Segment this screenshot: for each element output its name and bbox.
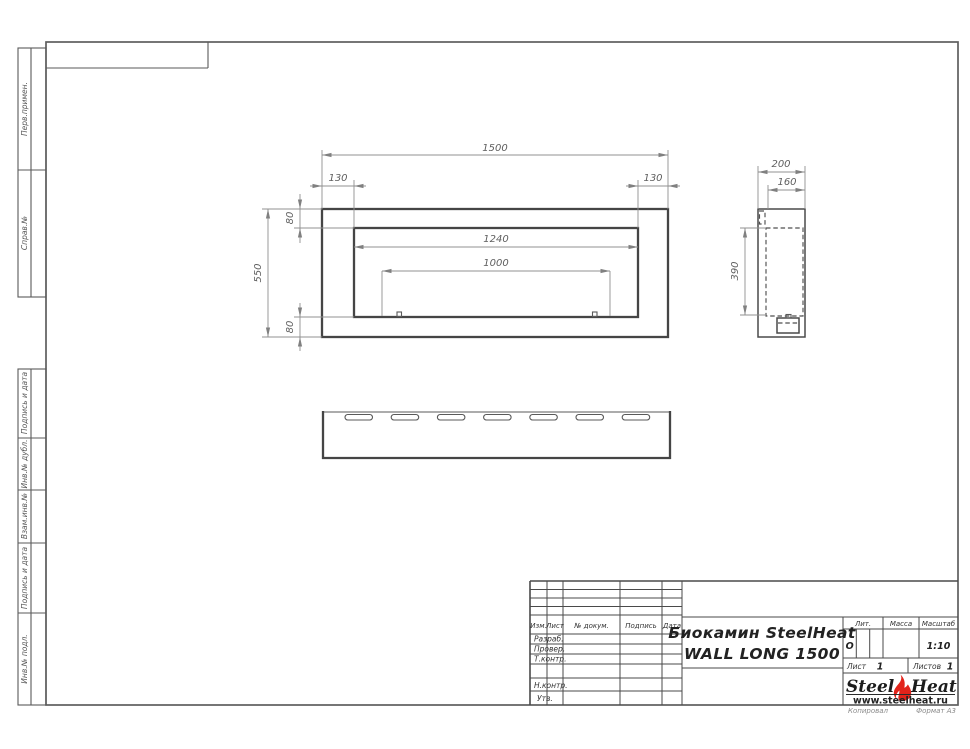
logo-heat-text: Heat: [910, 677, 957, 697]
dimensions-front: 1500 130 130 80 80 550 1240 1000: [253, 143, 680, 351]
tb-row-utv: Утв.: [537, 694, 553, 703]
tb-header-doc-no: № докум.: [573, 622, 609, 630]
dim-front-width: 1500: [482, 143, 507, 154]
tb-sheet-value: 1: [877, 662, 884, 673]
logo-steel-text: Steel: [846, 677, 895, 697]
side-bracket-hidden: [760, 211, 766, 224]
tb-row-tkontr: Т.контр.: [534, 655, 567, 664]
side-burner-box: [777, 318, 799, 333]
top-left-stamp: [46, 42, 208, 68]
dim-front-burner-width: 1000: [483, 258, 508, 269]
logo-site-url: www.steelheat.ru: [853, 696, 948, 707]
tb-header-izm: Изм.: [530, 622, 546, 630]
stamp-sprav-no: Справ.№: [20, 216, 29, 250]
dim-front-offset-right: 130: [643, 173, 662, 184]
tb-masshtab-value: 1:10: [927, 641, 951, 652]
stamp-podpis-data-top: Подпись и дата: [20, 372, 29, 435]
title-block: Изм. Лист № докум. Подпись Дата Разраб. …: [530, 581, 958, 707]
tb-header-list: Лист: [545, 622, 565, 630]
side-chamber-hidden: [766, 228, 803, 316]
tb-sheet-label: Лист: [846, 662, 867, 671]
dim-front-offset-top: 80: [285, 212, 296, 225]
dim-front-glass-width: 1240: [483, 234, 508, 245]
tb-row-razrab: Разраб.: [534, 635, 563, 644]
tb-masshtab-label: Масштаб: [922, 620, 956, 628]
footer-notes: Копировал Формат А3: [848, 707, 956, 715]
drawing-canvas: Перв.примен. Справ.№ Подпись и дата Инв.…: [0, 0, 970, 749]
burner-left-mark: [397, 312, 402, 317]
dimensions-side: 200 160 390: [730, 159, 805, 315]
footer-format: Формат А3: [916, 707, 956, 715]
sheet-frame: [46, 42, 958, 705]
tb-sheets-total-value: 1: [947, 662, 954, 673]
steelheat-logo: Steel Heat www.steelheat.ru: [846, 675, 957, 707]
bottom-view: [322, 411, 671, 459]
tb-row-nkontr: Н.контр.: [534, 681, 568, 690]
inner-frame: [46, 42, 958, 705]
tb-lit-value: О: [846, 641, 854, 652]
dim-front-height: 550: [253, 263, 264, 282]
stamp-inv-dubl: Инв.№ дубл.: [20, 440, 29, 489]
tb-sheets-total-label: Листов: [912, 662, 941, 671]
dim-side-inner-depth: 160: [777, 177, 796, 188]
doc-title-line2: WALL LONG 1500: [684, 645, 840, 663]
dim-side-height: 390: [730, 261, 741, 280]
stamp-podpis-data-bottom: Подпись и дата: [20, 547, 29, 610]
tb-massa-label: Масса: [890, 620, 912, 628]
dim-side-depth: 200: [771, 159, 790, 170]
drawing-sheet: Перв.примен. Справ.№ Подпись и дата Инв.…: [0, 0, 970, 749]
burner-right-mark: [593, 312, 598, 317]
stamp-vzam-inv: Взам.инв.№: [20, 493, 29, 539]
front-view: [322, 209, 668, 337]
dim-front-offset-left: 130: [328, 173, 347, 184]
left-stamp-column: Перв.примен. Справ.№ Подпись и дата Инв.…: [18, 48, 46, 705]
tb-lit-label: Лит.: [854, 620, 871, 628]
stamp-perv-primen: Перв.примен.: [20, 82, 29, 136]
vent-slots: [345, 415, 650, 421]
footer-kopiroval: Копировал: [848, 707, 889, 715]
tb-header-podpis: Подпись: [625, 622, 657, 630]
tb-row-prover: Провер.: [534, 645, 565, 654]
doc-title-line1: Биокамин SteelHeat: [668, 624, 856, 642]
stamp-inv-podl: Инв.№ подл.: [20, 634, 29, 683]
dim-front-offset-bottom: 80: [285, 321, 296, 334]
